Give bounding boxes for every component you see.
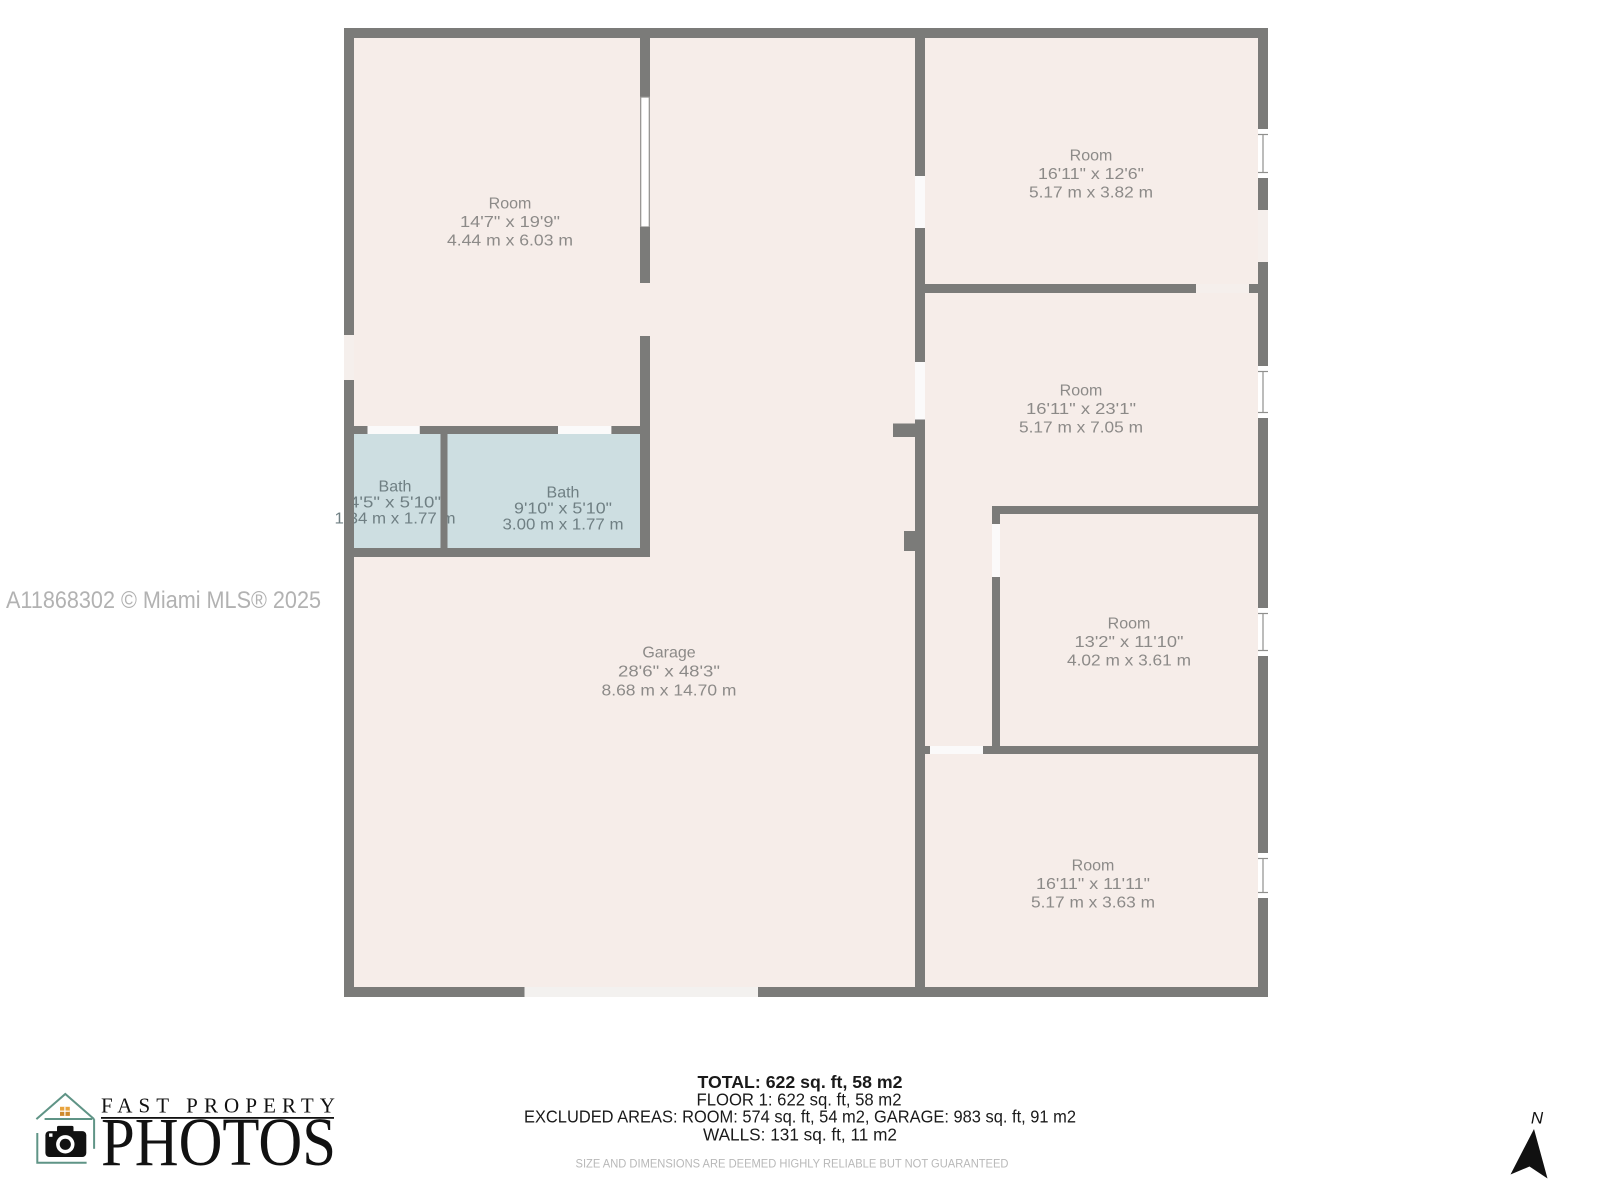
svg-text:Bath: Bath xyxy=(379,479,412,496)
svg-text:N: N xyxy=(1531,1109,1544,1128)
svg-text:4.44 m x 6.03 m: 4.44 m x 6.03 m xyxy=(447,233,573,250)
svg-text:5.17 m x 7.05 m: 5.17 m x 7.05 m xyxy=(1019,420,1143,437)
svg-text:SIZE AND DIMENSIONS ARE DEEMED: SIZE AND DIMENSIONS ARE DEEMED HIGHLY RE… xyxy=(576,1158,1009,1170)
svg-text:3.00 m x 1.77 m: 3.00 m x 1.77 m xyxy=(503,517,624,534)
svg-text:16'11" x 12'6": 16'11" x 12'6" xyxy=(1038,166,1144,183)
svg-text:Room: Room xyxy=(489,196,532,213)
svg-text:16'11" x 23'1": 16'11" x 23'1" xyxy=(1026,401,1136,418)
svg-text:13'2" x 11'10": 13'2" x 11'10" xyxy=(1075,634,1184,651)
svg-text:8.68 m x 14.70 m: 8.68 m x 14.70 m xyxy=(602,683,737,700)
svg-text:Garage: Garage xyxy=(642,645,695,662)
svg-text:WALLS: 131 sq. ft, 11 m2: WALLS: 131 sq. ft, 11 m2 xyxy=(703,1125,897,1145)
svg-text:Room: Room xyxy=(1070,148,1113,165)
svg-text:4.02 m x 3.61 m: 4.02 m x 3.61 m xyxy=(1067,653,1191,670)
svg-text:28'6" x 48'3": 28'6" x 48'3" xyxy=(618,664,720,681)
svg-text:16'11" x 11'11": 16'11" x 11'11" xyxy=(1036,876,1150,893)
svg-text:Bath: Bath xyxy=(547,485,580,502)
svg-text:PHOTOS: PHOTOS xyxy=(101,1104,336,1180)
svg-text:Room: Room xyxy=(1108,616,1151,633)
svg-text:Room: Room xyxy=(1060,383,1103,400)
svg-text:9'10" x 5'10": 9'10" x 5'10" xyxy=(514,501,612,518)
svg-text:14'7" x 19'9": 14'7" x 19'9" xyxy=(460,214,560,231)
svg-text:Room: Room xyxy=(1072,858,1115,875)
svg-text:5.17 m x 3.63 m: 5.17 m x 3.63 m xyxy=(1031,895,1155,912)
svg-text:A11868302 © Miami MLS® 2025: A11868302 © Miami MLS® 2025 xyxy=(6,587,321,614)
svg-text:5.17 m x 3.82 m: 5.17 m x 3.82 m xyxy=(1029,185,1153,202)
svg-text:4'5" x 5'10": 4'5" x 5'10" xyxy=(349,495,441,512)
